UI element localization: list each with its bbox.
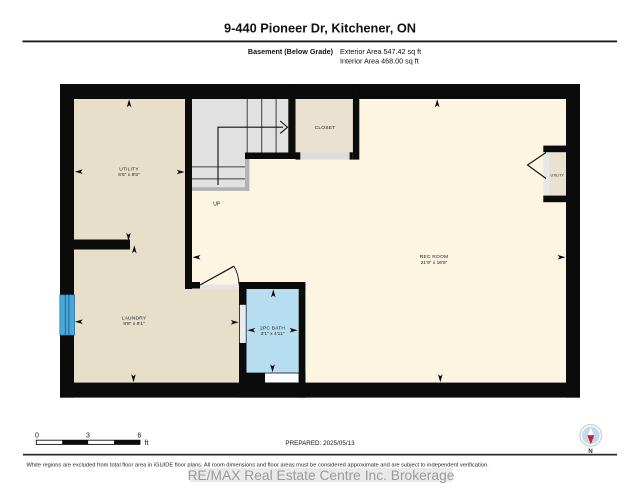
svg-text:0: 0 [35,433,39,440]
svg-text:6: 6 [137,433,141,440]
svg-text:UTILITY: UTILITY [119,167,139,173]
svg-text:Interior Area 468.00 sq ft: Interior Area 468.00 sq ft [340,57,419,66]
svg-text:PREPARED: 2025/05/13: PREPARED: 2025/05/13 [285,440,355,447]
svg-text:ft: ft [145,440,149,447]
svg-text:2PC BATH: 2PC BATH [260,326,285,332]
svg-text:CLOSET: CLOSET [315,125,336,131]
svg-text:3'1" x 4'11": 3'1" x 4'11" [261,331,285,337]
svg-text:6'5" x 8'5": 6'5" x 8'5" [118,172,140,178]
svg-text:LAUNDRY: LAUNDRY [122,315,147,321]
svg-text:3: 3 [86,433,90,440]
svg-text:UTILITY: UTILITY [551,173,565,177]
svg-text:Exterior Area 547.42 sq ft: Exterior Area 547.42 sq ft [340,47,421,56]
svg-text:REC ROOM: REC ROOM [420,254,449,260]
svg-text:RE/MAX Real Estate Centre Inc.: RE/MAX Real Estate Centre Inc. Brokerage [188,468,455,483]
svg-text:UP: UP [213,202,221,208]
svg-text:9-440 Pioneer Dr, Kitchener, O: 9-440 Pioneer Dr, Kitchener, ON [224,21,416,36]
svg-text:9'8" x 8'1": 9'8" x 8'1" [123,321,145,327]
svg-text:21'9" x 16'5": 21'9" x 16'5" [421,260,448,266]
svg-text:Basement (Below Grade): Basement (Below Grade) [248,47,334,56]
svg-text:N: N [588,448,593,455]
